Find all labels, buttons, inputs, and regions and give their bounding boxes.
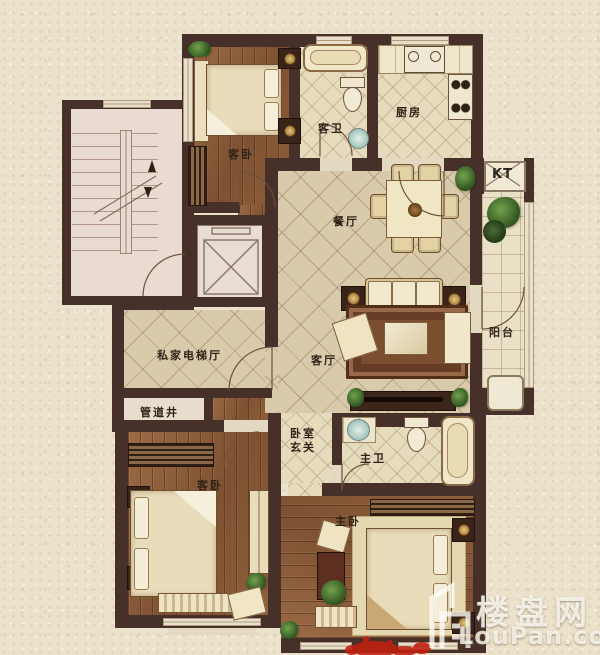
stair-arrow-up-icon [148,160,156,172]
room-label-master-bathroom: 主卫 [360,452,386,466]
red-splatter [363,637,370,644]
door-arc [224,432,259,467]
elevator-door [212,228,250,234]
room-label-foyer-line2: 玄关 [290,441,316,455]
room-label-pipe-shaft: 管道井 [140,406,179,420]
room-label-master-bedroom: 主卧 [335,515,361,529]
door-arc [143,254,185,296]
door-arc [342,464,369,491]
stair-break-line [100,183,162,221]
room-label-kt: KT [492,167,513,183]
floor-plan: 客卧 客卫 厨房 餐厅 客厅 KT 阳台 私家电梯厅 管道井 卧室 玄关 主卫 … [0,0,600,655]
room-label-guest-bathroom: 客卫 [318,122,344,136]
room-label-dining: 餐厅 [333,215,359,229]
door-arc [240,172,275,207]
watermark: 楼盘网 LouPan.com [426,580,600,655]
watermark-site: LouPan.com [458,622,600,650]
room-label-guest-bedroom-bottom: 客卧 [197,479,223,493]
stair-arrow-down-icon [144,187,152,198]
room-label-foyer-line1: 卧室 [290,427,316,441]
room-label-guest-bedroom-top: 客卧 [228,148,254,162]
red-splatter [388,640,393,645]
room-label-elevator-hall: 私家电梯厅 [157,349,222,363]
room-label-living: 客厅 [311,354,337,368]
stair-break-line [94,176,156,214]
red-splatter [345,645,359,655]
door-arc [482,287,524,329]
door-arc [229,347,272,390]
door-arc [399,171,444,216]
room-label-kitchen: 厨房 [396,106,422,120]
room-label-balcony: 阳台 [489,326,515,340]
